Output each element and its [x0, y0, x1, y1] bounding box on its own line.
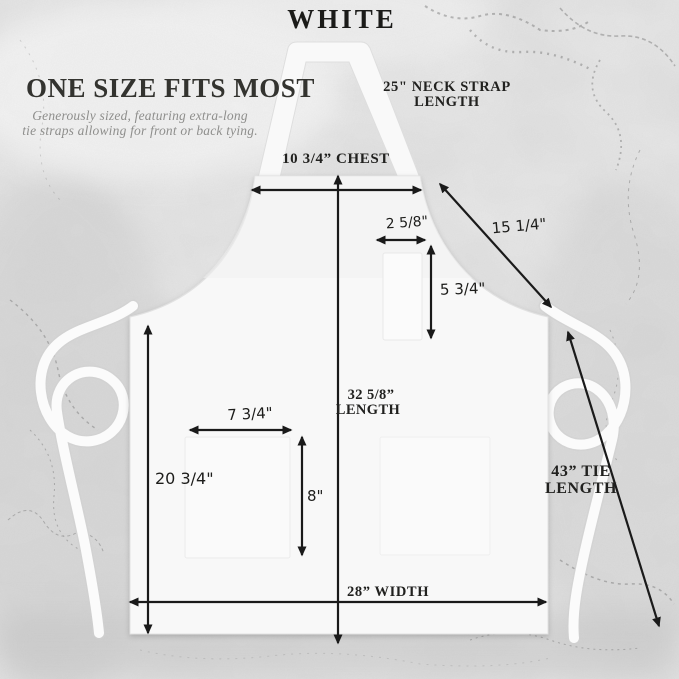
length-label-line2: LENGTH	[336, 403, 400, 419]
front-pocket-width-label: 7 3/4"	[227, 405, 273, 424]
front-pocket-left	[185, 437, 290, 558]
subtitle-line2: tie straps allowing for front or back ty…	[22, 123, 258, 139]
side-height-label: 20 3/4"	[155, 470, 214, 487]
width-label: 28” WIDTH	[347, 585, 429, 601]
pen-pocket-height-label: 5 3/4"	[440, 280, 486, 298]
tie-length-label-line2: LENGTH	[545, 480, 617, 497]
chest-label: 10 3/4” CHEST	[282, 151, 390, 167]
pen-pocket-width-label: 2 5/8"	[385, 215, 428, 233]
pen-pocket	[383, 253, 422, 340]
product-dimension-diagram: WHITE ONE SIZE FITS MOST Generously size…	[0, 0, 679, 679]
subtitle-line1: Generously sized, featuring extra-long	[32, 108, 248, 124]
one-size-headline: ONE SIZE FITS MOST	[26, 74, 315, 103]
front-pocket-right	[380, 437, 490, 555]
front-pocket-height-label: 8"	[307, 488, 323, 504]
tie-length-label-line1: 43” TIE	[551, 463, 610, 480]
neck-strap-label-line2: LENGTH	[414, 95, 480, 111]
color-title: WHITE	[287, 5, 397, 34]
